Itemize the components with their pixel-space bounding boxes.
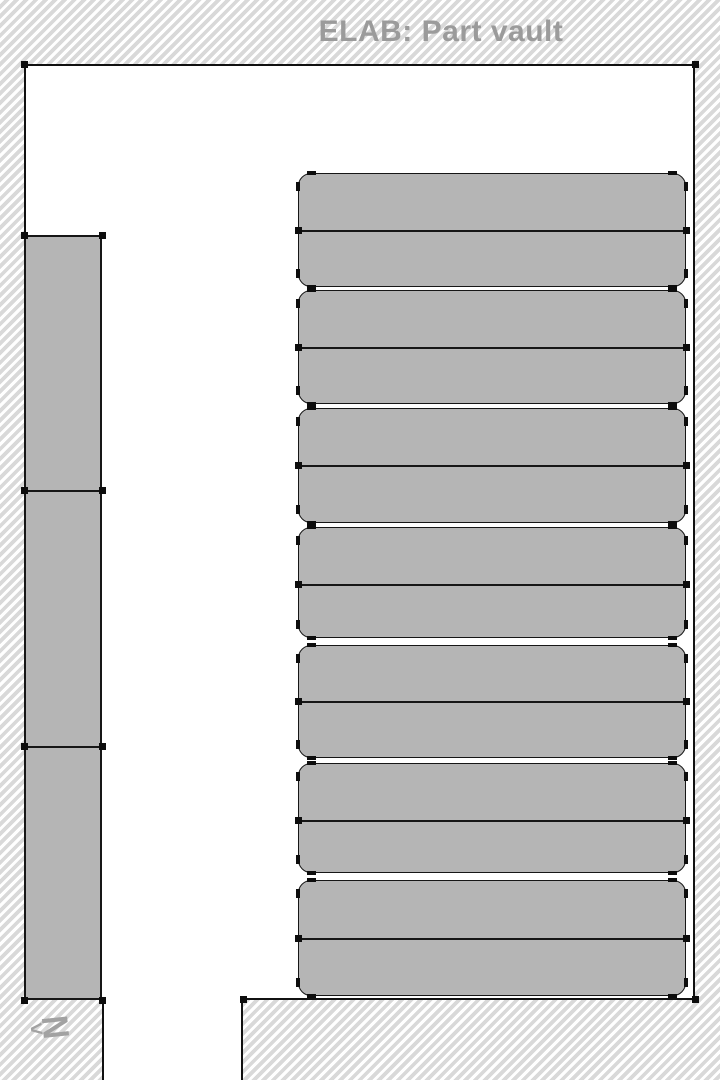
vertex-handle[interactable] — [307, 171, 316, 175]
vertex-handle[interactable] — [684, 505, 688, 514]
vertex-handle[interactable] — [295, 817, 302, 824]
shelf-stack-divider — [25, 490, 101, 492]
vertex-handle[interactable] — [240, 996, 247, 1003]
vertex-handle[interactable] — [668, 171, 677, 175]
vertex-handle[interactable] — [684, 182, 688, 191]
vertex-handle[interactable] — [684, 889, 688, 898]
shelf-unit-6[interactable] — [298, 763, 686, 873]
shelf-unit-divider — [299, 230, 685, 232]
shelf-unit-divider — [299, 584, 685, 586]
vertex-handle[interactable] — [296, 299, 300, 308]
vertex-handle[interactable] — [99, 232, 106, 239]
vertex-handle[interactable] — [668, 878, 677, 882]
north-arrow: < N — [28, 1010, 68, 1046]
vertex-handle[interactable] — [21, 743, 28, 750]
vertex-handle[interactable] — [307, 288, 316, 292]
vertex-handle[interactable] — [684, 978, 688, 987]
vertex-handle[interactable] — [21, 61, 28, 68]
shelf-stack-divider — [25, 746, 101, 748]
vertex-handle[interactable] — [684, 417, 688, 426]
vertex-handle[interactable] — [296, 772, 300, 781]
vertex-handle[interactable] — [684, 536, 688, 545]
vertex-handle[interactable] — [295, 698, 302, 705]
vertex-handle[interactable] — [684, 299, 688, 308]
vertex-handle[interactable] — [307, 406, 316, 410]
vertex-handle[interactable] — [295, 935, 302, 942]
vertex-handle[interactable] — [295, 227, 302, 234]
vertex-handle[interactable] — [307, 878, 316, 882]
vertex-handle[interactable] — [296, 182, 300, 191]
vertex-handle[interactable] — [307, 636, 316, 640]
vertex-handle[interactable] — [296, 536, 300, 545]
vertex-handle[interactable] — [668, 636, 677, 640]
vertex-handle[interactable] — [683, 817, 690, 824]
vertex-handle[interactable] — [21, 232, 28, 239]
shelf-unit-divider — [299, 347, 685, 349]
vertex-handle[interactable] — [668, 288, 677, 292]
south-wall-line — [243, 998, 696, 1000]
vertex-handle[interactable] — [684, 772, 688, 781]
vertex-handle[interactable] — [684, 386, 688, 395]
vertex-handle[interactable] — [692, 61, 699, 68]
north-arrow-letter: N — [36, 1014, 75, 1041]
vertex-handle[interactable] — [684, 269, 688, 278]
vertex-handle[interactable] — [99, 487, 106, 494]
vertex-handle[interactable] — [307, 756, 316, 760]
vertex-handle[interactable] — [296, 269, 300, 278]
wall-shelf-stack[interactable] — [24, 235, 102, 1000]
vertex-handle[interactable] — [668, 871, 677, 875]
vertex-handle[interactable] — [296, 889, 300, 898]
vertex-handle[interactable] — [99, 997, 106, 1004]
vertex-handle[interactable] — [296, 740, 300, 749]
shelf-unit-divider — [299, 701, 685, 703]
vertex-handle[interactable] — [296, 417, 300, 426]
vertex-handle[interactable] — [296, 620, 300, 629]
vertex-handle[interactable] — [668, 525, 677, 529]
vertex-handle[interactable] — [683, 935, 690, 942]
vertex-handle[interactable] — [668, 756, 677, 760]
vertex-handle[interactable] — [668, 406, 677, 410]
vertex-handle[interactable] — [683, 462, 690, 469]
vertex-handle[interactable] — [684, 620, 688, 629]
vertex-handle[interactable] — [307, 994, 316, 998]
vertex-handle[interactable] — [295, 581, 302, 588]
vertex-handle[interactable] — [684, 855, 688, 864]
vertex-handle[interactable] — [307, 643, 316, 647]
floor-plan-canvas: ELAB: Part vault < N — [0, 0, 720, 1080]
shelf-unit-divider — [299, 938, 685, 940]
vertex-handle[interactable] — [692, 996, 699, 1003]
vertex-handle[interactable] — [683, 344, 690, 351]
vertex-handle[interactable] — [307, 761, 316, 765]
vertex-handle[interactable] — [296, 386, 300, 395]
vertex-handle[interactable] — [295, 344, 302, 351]
vertex-handle[interactable] — [296, 978, 300, 987]
vertex-handle[interactable] — [296, 855, 300, 864]
vertex-handle[interactable] — [684, 740, 688, 749]
vertex-handle[interactable] — [684, 654, 688, 663]
vertex-handle[interactable] — [668, 994, 677, 998]
vertex-handle[interactable] — [99, 743, 106, 750]
shelf-unit-divider — [299, 465, 685, 467]
vertex-handle[interactable] — [295, 462, 302, 469]
vertex-handle[interactable] — [296, 505, 300, 514]
vertex-handle[interactable] — [307, 525, 316, 529]
vertex-handle[interactable] — [683, 227, 690, 234]
vertex-handle[interactable] — [668, 761, 677, 765]
plan-title: ELAB: Part vault — [319, 0, 564, 64]
shelf-unit-4[interactable] — [298, 527, 686, 638]
vertex-handle[interactable] — [683, 698, 690, 705]
south-corridor-floor — [102, 1000, 243, 1080]
vertex-handle[interactable] — [296, 654, 300, 663]
vertex-handle[interactable] — [21, 487, 28, 494]
vertex-handle[interactable] — [307, 871, 316, 875]
vertex-handle[interactable] — [683, 581, 690, 588]
vertex-handle[interactable] — [668, 643, 677, 647]
shelf-unit-divider — [299, 820, 685, 822]
vertex-handle[interactable] — [21, 997, 28, 1004]
